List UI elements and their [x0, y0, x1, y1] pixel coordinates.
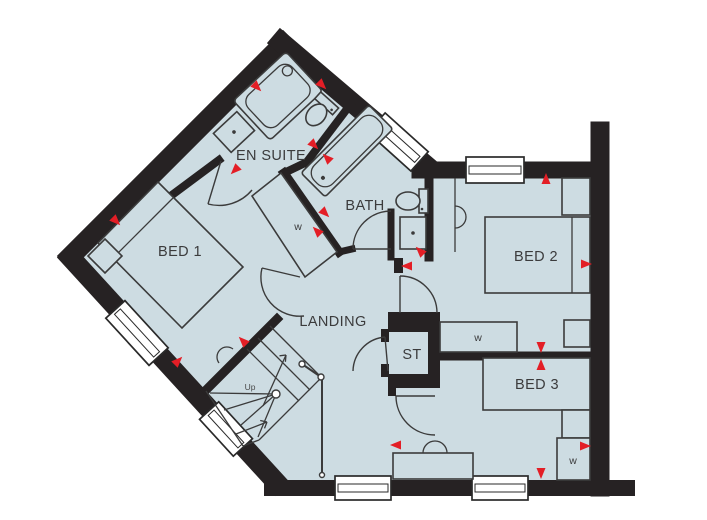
floor-plan: EN SUITE BATH BED 1 BED 2 BED 3 LANDING …	[0, 0, 707, 520]
dressing-table-icon	[393, 453, 473, 479]
room-label-landing: LANDING	[299, 314, 366, 330]
window-icon	[335, 476, 391, 500]
room-label-bed2: BED 2	[514, 249, 558, 265]
wall-stub	[339, 249, 352, 252]
bedside-table-icon	[562, 410, 590, 438]
room-label-en-suite: EN SUITE	[236, 148, 306, 164]
window-icon	[466, 157, 524, 183]
wardrobe-label: w	[293, 221, 302, 233]
wardrobe-label: w	[473, 332, 482, 344]
chest-of-drawers-icon	[564, 320, 590, 347]
wall-bed3-door-bar	[388, 377, 396, 396]
basin-icon	[400, 217, 426, 249]
room-label-bed3: BED 3	[515, 377, 559, 393]
floor-plan-drawing: EN SUITE BATH BED 1 BED 2 BED 3 LANDING …	[0, 0, 707, 520]
room-label-store: ST	[402, 347, 421, 363]
window-icon	[472, 476, 528, 500]
door-post	[394, 258, 403, 273]
bedside-table-icon	[562, 178, 590, 215]
newel-post	[272, 390, 280, 398]
room-label-bath: BATH	[345, 198, 384, 214]
stairs-up-label: Up	[245, 382, 256, 392]
room-label-bed1: BED 1	[158, 244, 202, 260]
wardrobe-label: w	[568, 455, 577, 467]
